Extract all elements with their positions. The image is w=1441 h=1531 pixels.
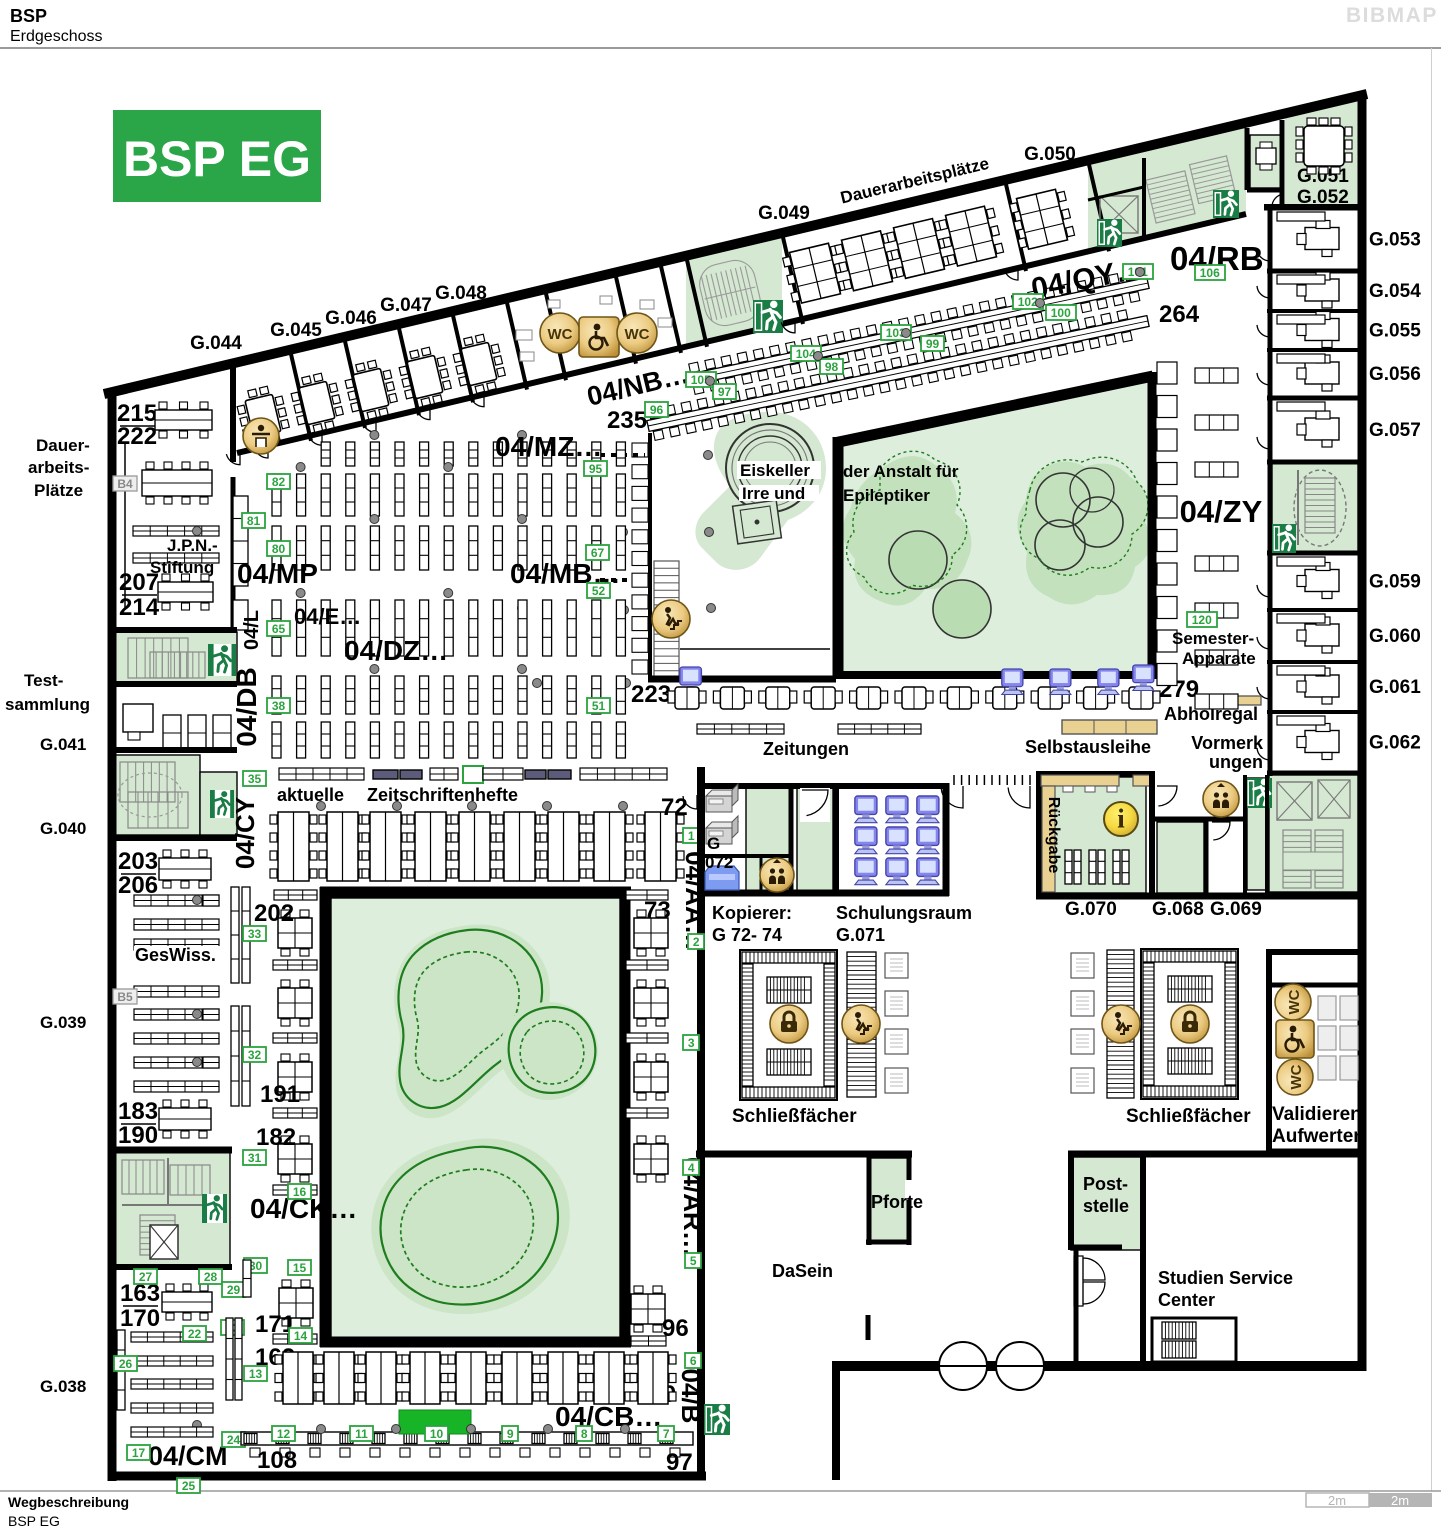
svg-text:B4: B4 [117,477,133,491]
svg-text:96: 96 [662,1315,689,1342]
svg-text:04/DB: 04/DB [231,667,262,746]
svg-text:G.039: G.039 [40,1013,86,1032]
svg-text:G.060: G.060 [1369,626,1421,647]
svg-text:J.P.N.-: J.P.N.- [167,536,218,555]
svg-text:Plätze: Plätze [34,481,83,500]
svg-text:Post-: Post- [1083,1174,1128,1194]
svg-text:29: 29 [227,1283,241,1297]
svg-text:8: 8 [581,1427,588,1441]
svg-text:12: 12 [277,1427,291,1441]
svg-text:51: 51 [592,699,606,713]
svg-text:Apparate: Apparate [1182,649,1256,668]
svg-text:17: 17 [132,1446,146,1460]
svg-text:04/DZ…: 04/DZ… [344,635,448,666]
svg-text:BSP EG: BSP EG [8,1513,60,1529]
svg-text:35: 35 [248,772,262,786]
svg-text:Vormerk: Vormerk [1191,733,1264,753]
svg-text:16: 16 [293,1185,307,1199]
svg-text:BSP: BSP [10,6,47,26]
svg-text:G.044: G.044 [190,333,242,354]
svg-text:1: 1 [688,829,695,843]
svg-text:32: 32 [248,1048,262,1062]
svg-text:der Anstalt für: der Anstalt für [843,462,959,481]
svg-text:04/MZ…: 04/MZ… [495,431,602,462]
svg-text:G.049: G.049 [758,203,810,224]
svg-text:25: 25 [182,1479,196,1493]
svg-text:99: 99 [926,337,940,351]
svg-text:WC: WC [625,326,650,343]
svg-text:22: 22 [188,1327,202,1341]
svg-text:G: G [707,834,720,853]
svg-text:BSP EG: BSP EG [123,131,311,187]
svg-text:27: 27 [139,1270,153,1284]
svg-text:96: 96 [650,403,664,417]
svg-text:190: 190 [118,1122,158,1149]
svg-text:102: 102 [1018,295,1038,309]
svg-text:B5: B5 [117,990,133,1004]
svg-text:26: 26 [119,1357,133,1371]
svg-text:G.054: G.054 [1369,281,1421,302]
svg-text:G.041: G.041 [40,735,86,754]
svg-text:82: 82 [272,475,286,489]
svg-text:Aufwerten: Aufwerten [1272,1126,1365,1147]
svg-text:191: 191 [260,1081,300,1108]
svg-text:11: 11 [355,1427,368,1441]
svg-text:10: 10 [430,1427,444,1441]
svg-text:arbeits-: arbeits- [28,458,89,477]
svg-text:DaSein: DaSein [772,1261,833,1281]
svg-text:2: 2 [693,935,700,949]
svg-text:182: 182 [256,1124,296,1151]
svg-text:Zeitungen: Zeitungen [763,739,849,759]
svg-text:2m: 2m [1328,1493,1346,1508]
svg-text:203: 203 [118,848,158,875]
svg-text:Kopierer:: Kopierer: [712,903,792,923]
svg-text:222: 222 [117,423,157,450]
svg-text:04/CY: 04/CY [230,797,260,869]
svg-text:G 72- 74: G 72- 74 [712,925,782,945]
svg-text:WC: WC [1286,989,1303,1014]
svg-text:04/ZY: 04/ZY [1180,494,1263,529]
svg-text:04/E…: 04/E… [294,604,361,629]
svg-text:3: 3 [688,1036,695,1050]
svg-text:G.052: G.052 [1297,187,1349,208]
svg-text:Selbstausleihe: Selbstausleihe [1025,737,1151,757]
svg-text:106: 106 [1200,266,1220,280]
svg-text:95: 95 [589,462,603,476]
svg-text:04/L: 04/L [241,610,263,650]
svg-text:Validieren: Validieren [1272,1104,1362,1125]
svg-text:52: 52 [592,584,606,598]
svg-text:G.056: G.056 [1369,364,1421,385]
svg-text:G.047: G.047 [380,295,432,316]
svg-text:100: 100 [1051,306,1071,320]
svg-text:Epileptiker: Epileptiker [843,486,930,505]
svg-text:stelle: stelle [1083,1196,1129,1216]
svg-text:6: 6 [690,1354,697,1368]
svg-text:G.061: G.061 [1369,677,1421,698]
svg-text:65: 65 [272,622,286,636]
svg-text:04/CB…: 04/CB… [555,1401,662,1432]
svg-text:98: 98 [825,360,839,374]
svg-text:072: 072 [705,853,733,872]
svg-text:38: 38 [272,699,286,713]
svg-text:28: 28 [204,1270,218,1284]
svg-text:G.068: G.068 [1152,899,1204,920]
svg-text:207: 207 [119,569,159,596]
svg-text:Schließfächer: Schließfächer [1126,1106,1251,1127]
svg-text:Studien Service: Studien Service [1158,1268,1293,1288]
svg-text:108: 108 [257,1447,297,1474]
svg-text:80: 80 [272,542,286,556]
svg-text:Zeitschriftenhefte: Zeitschriftenhefte [367,785,518,805]
svg-text:04/B: 04/B [676,1369,706,1424]
svg-text:81: 81 [247,514,261,528]
svg-text:183: 183 [118,1098,158,1125]
svg-text:9: 9 [507,1427,514,1441]
svg-text:214: 214 [119,594,160,621]
svg-text:67: 67 [591,546,605,560]
svg-text:2m: 2m [1391,1493,1409,1508]
svg-text:Center: Center [1158,1290,1215,1310]
svg-text:BIBMAP: BIBMAP [1346,4,1438,27]
svg-text:Eiskeller: Eiskeller [740,461,810,480]
svg-text:97: 97 [666,1449,693,1476]
svg-text:24: 24 [227,1433,241,1447]
svg-text:G.045: G.045 [270,320,322,341]
svg-text:G.059: G.059 [1369,572,1421,593]
svg-text:WC: WC [548,326,573,343]
svg-text:G.071: G.071 [836,925,885,945]
svg-text:i: i [1117,804,1125,834]
svg-text:7: 7 [663,1427,670,1441]
svg-text:Schließfächer: Schließfächer [732,1106,857,1127]
svg-text:04/CM: 04/CM [148,1441,228,1471]
svg-text:G.062: G.062 [1369,733,1421,754]
svg-text:Rückgabe: Rückgabe [1045,797,1062,874]
svg-text:Wegbeschreibung: Wegbeschreibung [8,1494,129,1510]
svg-text:WC: WC [1288,1064,1305,1089]
svg-text:aktuelle: aktuelle [277,785,344,805]
svg-text:235: 235 [607,407,647,434]
svg-text:G.055: G.055 [1369,321,1421,342]
svg-text:33: 33 [248,927,262,941]
svg-text:ungen: ungen [1209,752,1263,772]
svg-text:120: 120 [1192,613,1212,627]
svg-text:264: 264 [1159,301,1200,328]
svg-text:Test-: Test- [24,671,63,690]
svg-text:G.053: G.053 [1369,230,1421,251]
svg-text:Schulungsraum: Schulungsraum [836,903,972,923]
svg-text:G.038: G.038 [40,1377,86,1396]
svg-text:sammlung: sammlung [5,695,90,714]
svg-text:G.048: G.048 [435,283,487,304]
svg-text:G.057: G.057 [1369,420,1421,441]
svg-text:Semester-: Semester- [1172,629,1254,648]
svg-text:14: 14 [294,1329,308,1343]
svg-text:G.046: G.046 [325,308,377,329]
svg-text:GesWiss.: GesWiss. [135,945,216,965]
svg-text:G.040: G.040 [40,819,86,838]
svg-text:15: 15 [293,1261,307,1275]
svg-text:31: 31 [248,1151,262,1165]
svg-text:202: 202 [254,900,294,927]
svg-text:G.070: G.070 [1065,899,1117,920]
svg-text:13: 13 [249,1367,263,1381]
svg-text:G.050: G.050 [1024,144,1076,165]
svg-text:Dauer-: Dauer- [36,436,90,455]
svg-text:Erdgeschoss: Erdgeschoss [10,28,103,45]
svg-text:104: 104 [796,347,816,361]
svg-text:04/MP: 04/MP [237,558,318,589]
svg-text:97: 97 [718,385,732,399]
svg-text:5: 5 [690,1254,697,1268]
svg-text:223: 223 [631,681,671,708]
svg-text:170: 170 [120,1305,160,1332]
svg-text:G.069: G.069 [1210,899,1262,920]
svg-text:4: 4 [688,1161,695,1175]
svg-text:Irre und: Irre und [742,484,805,503]
svg-text:Pforte: Pforte [871,1192,923,1212]
